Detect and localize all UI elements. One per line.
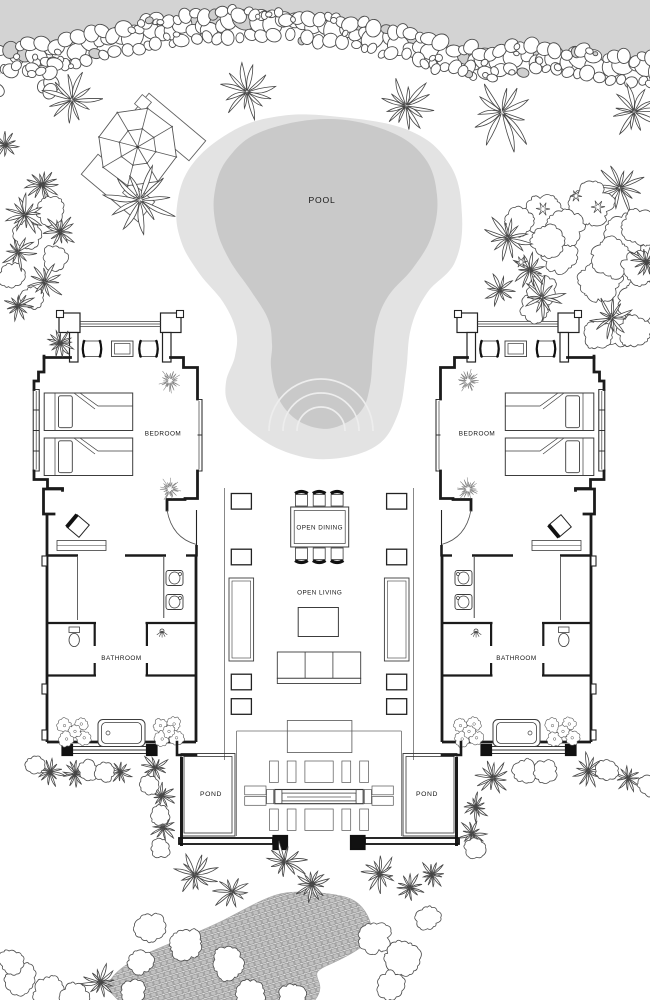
svg-text:OPEN LIVING: OPEN LIVING — [297, 590, 342, 597]
svg-text:BEDROOM: BEDROOM — [459, 431, 496, 438]
svg-text:OPEN DINING: OPEN DINING — [296, 525, 343, 532]
svg-text:BATHROOM: BATHROOM — [101, 655, 141, 662]
svg-text:POOL: POOL — [308, 195, 335, 205]
svg-text:POND: POND — [416, 791, 438, 798]
svg-text:BEDROOM: BEDROOM — [145, 431, 182, 438]
svg-text:BATHROOM: BATHROOM — [496, 655, 536, 662]
svg-text:POND: POND — [200, 791, 222, 798]
